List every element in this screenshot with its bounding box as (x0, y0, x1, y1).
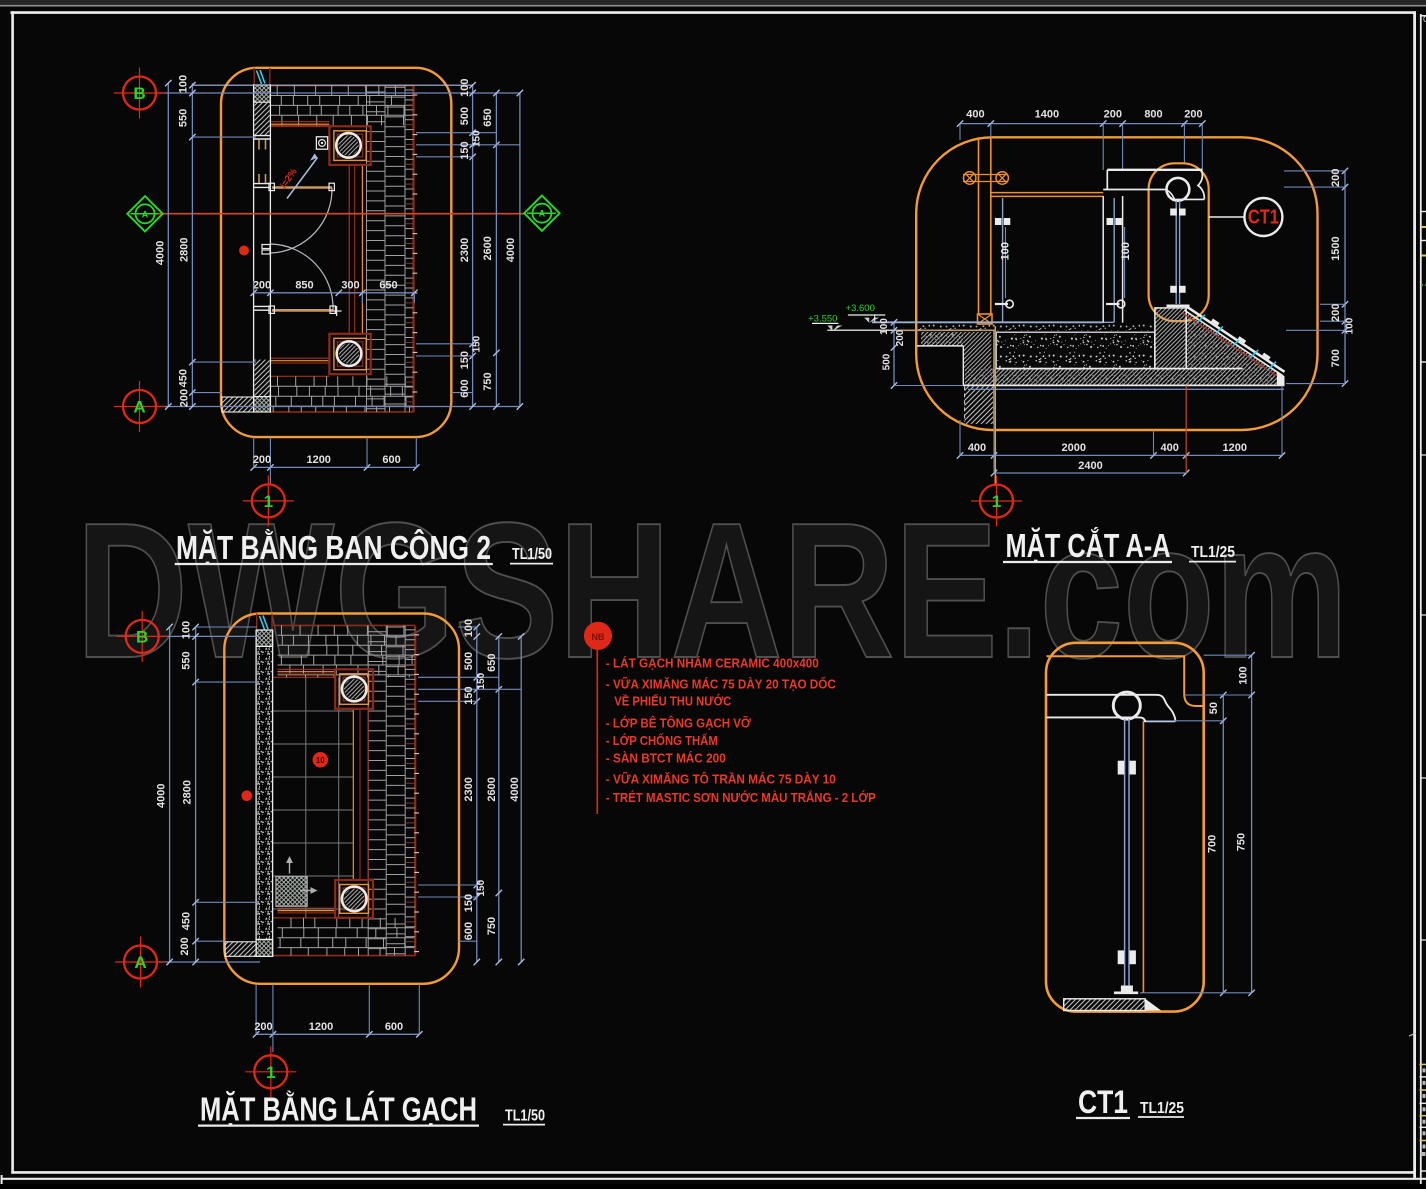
svg-text:2000: 2000 (1062, 442, 1086, 454)
svg-text:1200: 1200 (309, 1021, 333, 1033)
svg-text:100: 100 (459, 79, 471, 97)
svg-text:400: 400 (968, 442, 986, 454)
svg-text:700: 700 (1207, 835, 1219, 853)
svg-text:1200: 1200 (1223, 442, 1247, 454)
svg-text:500: 500 (463, 652, 475, 670)
svg-text:1500: 1500 (1330, 236, 1342, 260)
svg-text:CT1: CT1 (1078, 1084, 1128, 1120)
svg-text:650: 650 (486, 654, 498, 672)
svg-text:600: 600 (463, 922, 475, 940)
svg-text:200: 200 (1184, 109, 1202, 121)
svg-text:VỀ PHIẾU THU NƯỚC: VỀ PHIẾU THU NƯỚC (614, 694, 731, 709)
svg-text:A: A (134, 953, 146, 972)
svg-text:- LÁT GẠCH NHÁM CERAMIC 400x40: - LÁT GẠCH NHÁM CERAMIC 400x400 (606, 656, 819, 671)
svg-text:150: 150 (472, 335, 483, 352)
svg-text:100: 100 (1120, 242, 1132, 260)
svg-text:MẶT BẰNG BAN CÔNG 2: MẶT BẰNG BAN CÔNG 2 (176, 528, 491, 566)
svg-text:2600: 2600 (486, 777, 498, 801)
svg-text:+3.550: +3.550 (808, 313, 837, 324)
svg-text:200: 200 (254, 1021, 272, 1033)
svg-text:NB: NB (592, 632, 605, 642)
svg-text:- VỮA XIMĂNG MÁC 75 DÀY 20 TẠO: - VỮA XIMĂNG MÁC 75 DÀY 20 TẠO DỐC (606, 677, 836, 692)
svg-text:150: 150 (463, 686, 475, 704)
svg-text:500: 500 (882, 353, 893, 370)
svg-text:TL1/50: TL1/50 (512, 546, 552, 563)
svg-text:100: 100 (463, 619, 475, 637)
svg-text:100: 100 (181, 621, 193, 639)
svg-text:2300: 2300 (463, 777, 475, 801)
svg-text:450: 450 (181, 912, 193, 930)
svg-text:800: 800 (1144, 109, 1162, 121)
svg-text:2800: 2800 (182, 780, 194, 804)
svg-text:2300: 2300 (459, 238, 471, 262)
svg-text:- VỮA XIMĂNG TÔ TRẦN MÁC 75 DÀ: - VỮA XIMĂNG TÔ TRẦN MÁC 75 DÀY 10 (606, 772, 836, 787)
svg-text:700: 700 (1330, 349, 1342, 367)
svg-text:150: 150 (463, 894, 475, 912)
svg-text:1: 1 (264, 492, 273, 511)
svg-text:450: 450 (178, 369, 190, 387)
svg-text:1: 1 (266, 1063, 275, 1082)
svg-text:150: 150 (459, 351, 471, 369)
svg-text:100: 100 (1237, 666, 1249, 684)
svg-text:100: 100 (1345, 317, 1356, 334)
svg-text:500: 500 (459, 107, 471, 125)
svg-text:- SÀN BTCT MÁC 200: - SÀN BTCT MÁC 200 (606, 751, 726, 766)
svg-text:150: 150 (476, 879, 487, 896)
svg-text:1400: 1400 (1035, 109, 1059, 121)
svg-text:2400: 2400 (1078, 460, 1102, 472)
svg-text:200: 200 (1104, 109, 1122, 121)
svg-text:DWGSHARE: DWGSHARE (76, 482, 998, 698)
svg-text:4000: 4000 (509, 777, 521, 801)
svg-text:- LỚP CHỐNG THẤM: - LỚP CHỐNG THẤM (606, 733, 718, 748)
svg-text:2600: 2600 (482, 236, 494, 260)
svg-text:200: 200 (1330, 169, 1342, 187)
svg-text:B: B (136, 627, 148, 646)
svg-text:200: 200 (179, 937, 191, 955)
svg-text:+3.600: +3.600 (846, 303, 875, 314)
svg-text:- TRÉT MASTIC SƠN NƯỚC MÀU TRẮ: - TRÉT MASTIC SƠN NƯỚC MÀU TRẮNG - 2 LỚP (606, 790, 876, 805)
svg-text:300: 300 (341, 280, 359, 292)
svg-text:100: 100 (1000, 242, 1012, 260)
svg-text:650: 650 (482, 108, 494, 126)
svg-text:750: 750 (482, 372, 494, 390)
svg-text:1200: 1200 (306, 454, 330, 466)
svg-text:100: 100 (879, 318, 890, 335)
svg-text:550: 550 (181, 651, 193, 669)
svg-text:4000: 4000 (155, 241, 167, 265)
svg-text:TL1/50: TL1/50 (505, 1108, 545, 1125)
svg-text:600: 600 (459, 379, 471, 397)
svg-text:50: 50 (1208, 702, 1220, 714)
svg-text:150: 150 (472, 130, 483, 147)
svg-text:.com: .com (998, 482, 1348, 698)
svg-text:2800: 2800 (179, 237, 191, 261)
svg-text:600: 600 (382, 454, 400, 466)
svg-text:150: 150 (459, 141, 471, 159)
svg-text:4000: 4000 (505, 238, 517, 262)
svg-text:10: 10 (316, 756, 325, 765)
svg-text:MẶT CẮT A-A: MẶT CẮT A-A (1006, 527, 1171, 564)
svg-text:200: 200 (1330, 304, 1342, 322)
svg-text:200: 200 (253, 280, 271, 292)
svg-text:200: 200 (895, 329, 906, 346)
svg-text:4000: 4000 (156, 783, 168, 807)
svg-text:150: 150 (476, 672, 487, 689)
svg-text:750: 750 (486, 917, 498, 935)
svg-text:100: 100 (178, 75, 190, 93)
svg-text:TL1/25: TL1/25 (1140, 1100, 1184, 1117)
svg-text:750: 750 (1236, 833, 1248, 851)
svg-text:600: 600 (385, 1021, 403, 1033)
svg-text:400: 400 (1161, 442, 1179, 454)
svg-text:A: A (133, 398, 145, 417)
svg-text:650: 650 (379, 280, 397, 292)
svg-text:400: 400 (966, 109, 984, 121)
svg-text:1: 1 (992, 492, 1001, 511)
svg-text:- LỚP BÊ TÔNG GẠCH VỠ: - LỚP BÊ TÔNG GẠCH VỠ (606, 716, 751, 731)
svg-text:TL1/25: TL1/25 (1191, 544, 1235, 561)
svg-text:200: 200 (253, 454, 271, 466)
svg-text:200: 200 (179, 389, 191, 407)
svg-text:850: 850 (295, 280, 313, 292)
svg-text:MẶT BẰNG LÁT GẠCH: MẶT BẰNG LÁT GẠCH (200, 1091, 477, 1128)
svg-text:CT1: CT1 (1248, 207, 1279, 229)
svg-text:B: B (133, 84, 145, 103)
svg-text:550: 550 (178, 109, 190, 127)
